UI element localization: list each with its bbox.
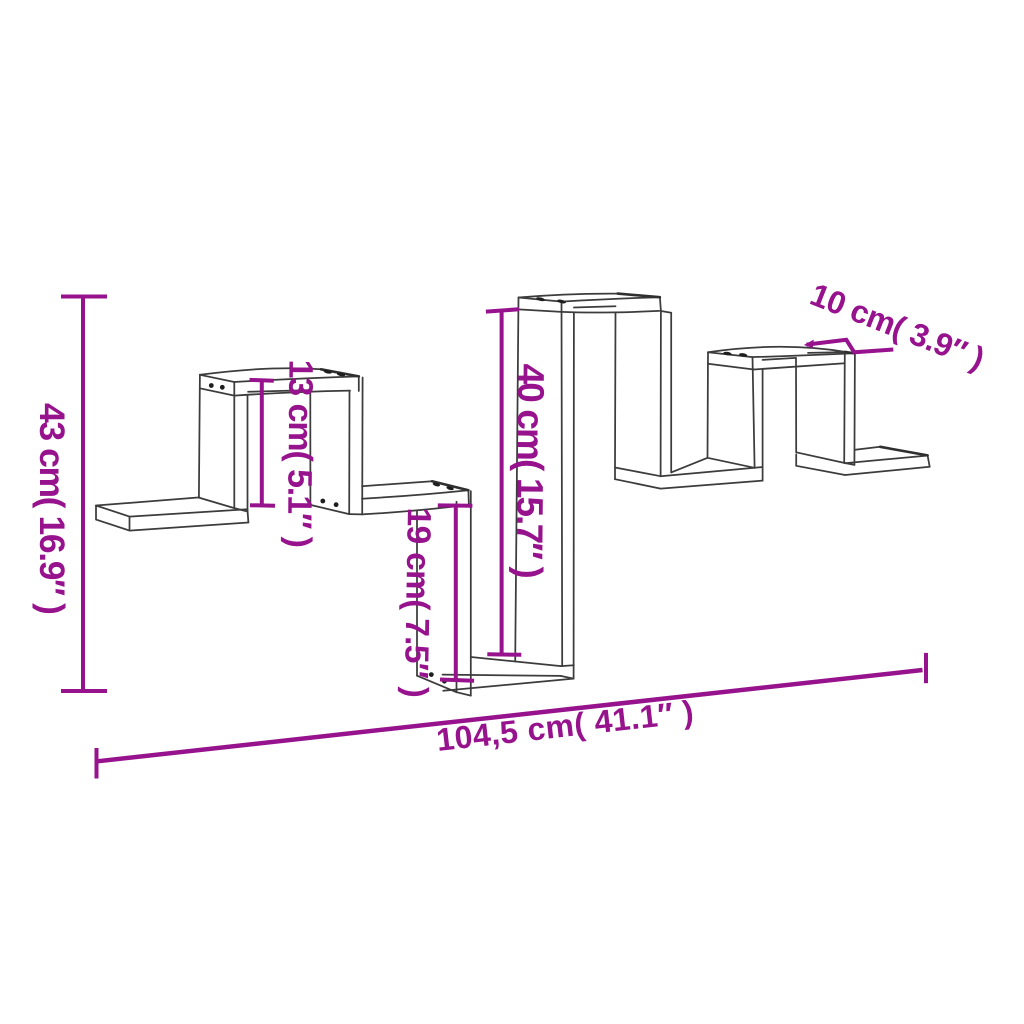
svg-text:19 cm( 7.5″ ): 19 cm( 7.5″ ) (397, 507, 437, 697)
svg-text:40 cm( 15.7″ ): 40 cm( 15.7″ ) (509, 363, 552, 577)
svg-text:13 cm( 5.1″ ): 13 cm( 5.1″ ) (280, 359, 320, 547)
svg-text:43 cm( 16.9″ ): 43 cm( 16.9″ ) (32, 403, 72, 614)
